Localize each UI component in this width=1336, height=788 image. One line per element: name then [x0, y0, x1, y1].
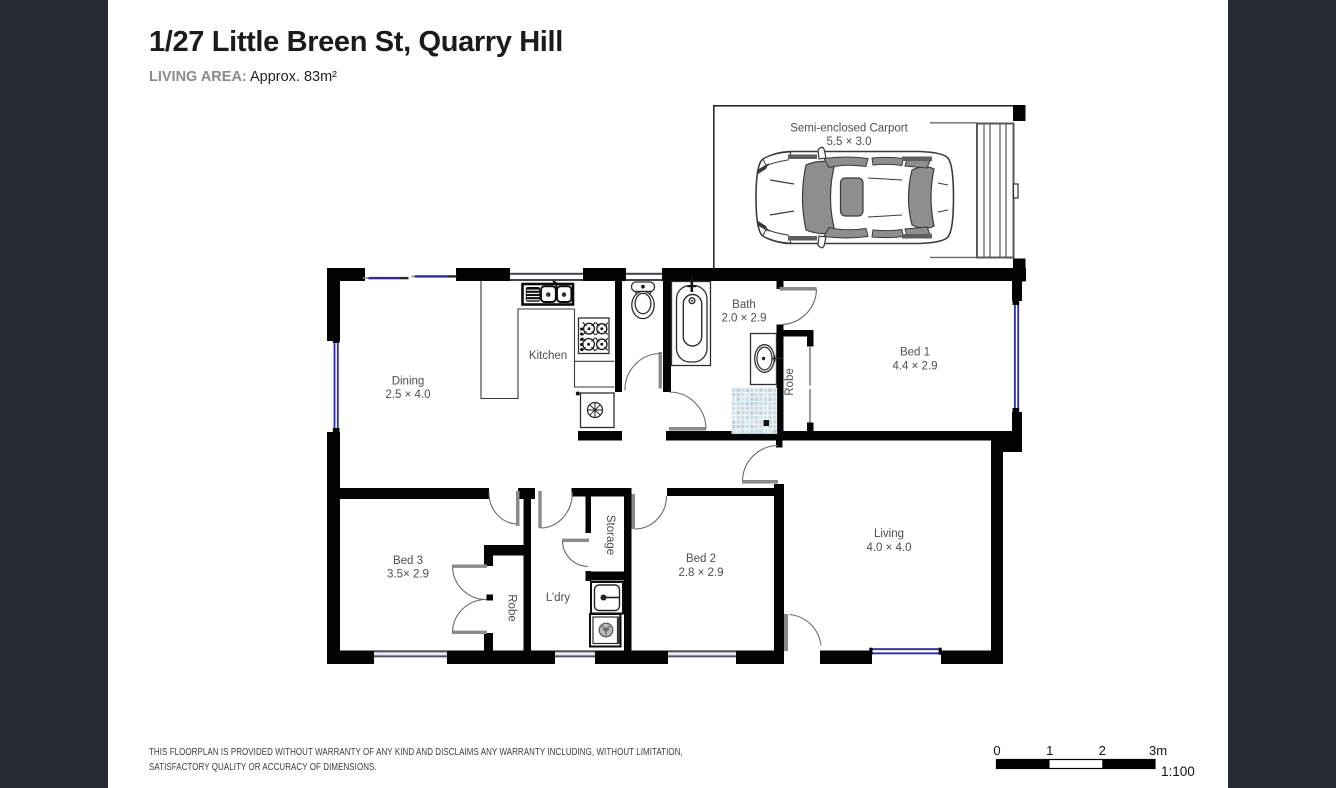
svg-text:Bed 3: Bed 3: [393, 555, 423, 567]
svg-text:Semi-enclosed Carport: Semi-enclosed Carport: [790, 123, 908, 135]
svg-text:2: 2: [1099, 743, 1106, 758]
svg-text:5.5 × 3.0: 5.5 × 3.0: [826, 136, 871, 148]
svg-text:4.0 × 4.0: 4.0 × 4.0: [866, 542, 911, 554]
svg-text:1: 1: [1046, 743, 1053, 758]
svg-text:Robe: Robe: [506, 594, 518, 622]
svg-text:L’dry: L’dry: [546, 592, 571, 604]
svg-text:Robe: Robe: [784, 368, 796, 396]
svg-text:Living: Living: [874, 528, 904, 540]
svg-text:2.5 × 4.0: 2.5 × 4.0: [385, 389, 430, 401]
svg-text:2.8 × 2.9: 2.8 × 2.9: [678, 567, 723, 579]
svg-text:Kitchen: Kitchen: [529, 350, 567, 362]
svg-text:Bath: Bath: [732, 299, 756, 311]
svg-text:3m: 3m: [1149, 743, 1167, 758]
svg-text:0: 0: [993, 743, 1000, 758]
svg-text:Storage: Storage: [604, 515, 616, 555]
svg-text:1:100: 1:100: [1161, 764, 1195, 779]
svg-text:Bed 2: Bed 2: [686, 553, 716, 565]
svg-text:4.4 × 2.9: 4.4 × 2.9: [892, 361, 937, 373]
svg-text:Dining: Dining: [392, 376, 425, 388]
svg-text:2.0 × 2.9: 2.0 × 2.9: [721, 313, 766, 325]
svg-text:Bed 1: Bed 1: [900, 347, 930, 359]
svg-text:3.5× 2.9: 3.5× 2.9: [387, 569, 429, 581]
